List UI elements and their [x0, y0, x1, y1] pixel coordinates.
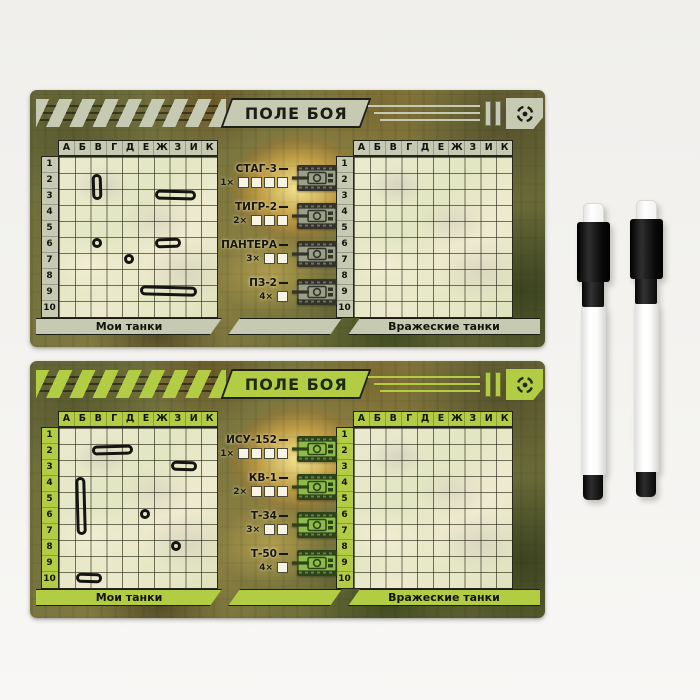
drawn-tank-mark [75, 477, 86, 535]
row-number: 6 [42, 508, 58, 524]
tank-count: 3× [246, 525, 260, 535]
marker-body [581, 307, 606, 475]
row-number: 9 [42, 285, 58, 301]
row-number: 1 [42, 428, 58, 444]
tank-name: СТАГ-3 [236, 163, 277, 175]
hit-checkbox[interactable] [251, 177, 262, 188]
column-letter: Г [402, 412, 418, 426]
column-letter: И [481, 412, 497, 426]
tank-top-view-icon [292, 511, 338, 539]
column-letter: В [386, 141, 402, 155]
hit-checkbox[interactable] [251, 215, 262, 226]
title-banner: ПОЛЕ БОЯ [221, 98, 372, 128]
tank-count: 3× [246, 254, 260, 264]
connector-line [279, 168, 288, 170]
tank-count: 2× [233, 216, 247, 226]
board-title: ПОЛЕ БОЯ [245, 375, 348, 394]
hit-checkbox[interactable] [277, 291, 288, 302]
my-tanks-label: Мои танки [36, 318, 222, 335]
column-letter: Е [434, 141, 450, 155]
drawn-tank-mark [171, 461, 197, 472]
drawn-tank-mark [92, 444, 134, 455]
game-board-top: ПОЛЕ БОЯ АБВГДЕЖЗИК 12345678910 АБВГДЕЖЗ… [30, 90, 545, 347]
hit-checkbox[interactable] [264, 215, 275, 226]
row-number: 10 [42, 572, 58, 588]
column-letter: Ж [154, 412, 170, 426]
tank-top-view-icon [292, 240, 338, 268]
column-letter: Ж [449, 412, 465, 426]
column-letter: К [202, 412, 217, 426]
board-title: ПОЛЕ БОЯ [245, 104, 348, 123]
tank-entry: ИСУ-1521× [220, 431, 340, 469]
tank-entry: СТАГ-31× [220, 160, 340, 198]
row-number: 10 [42, 301, 58, 317]
header-line [380, 119, 480, 121]
column-letters-right: АБВГДЕЖЗИК [353, 140, 513, 156]
column-letter: К [497, 412, 512, 426]
drawn-tank-mark [155, 238, 181, 249]
header-bar [485, 372, 491, 397]
hit-checkbox[interactable] [238, 448, 249, 459]
tank-top-view-icon [292, 278, 338, 306]
drawn-tank-mark [155, 189, 197, 200]
column-letters-right: АБВГДЕЖЗИК [353, 411, 513, 427]
tank-count: 1× [220, 449, 234, 459]
product-photo: ПОЛЕ БОЯ АБВГДЕЖЗИК 12345678910 АБВГДЕЖЗ… [0, 0, 700, 700]
column-letter: Е [434, 412, 450, 426]
column-letter: З [170, 141, 186, 155]
footer-divider-strip [228, 589, 342, 606]
column-letter: К [497, 141, 512, 155]
connector-line [279, 553, 288, 555]
connector-line [279, 515, 288, 517]
row-number: 1 [42, 157, 58, 173]
column-letter: Е [139, 412, 155, 426]
row-number: 7 [42, 524, 58, 540]
header-line [368, 376, 480, 378]
tank-top-view-icon [292, 549, 338, 577]
tank-entry: КВ-12× [220, 469, 340, 507]
connector-line [279, 477, 288, 479]
hazard-stripes-icon [36, 99, 226, 127]
marker-neck [582, 282, 604, 307]
column-letter: А [354, 412, 370, 426]
row-number: 4 [42, 476, 58, 492]
dry-erase-marker[interactable] [629, 200, 663, 497]
row-number: 7 [42, 253, 58, 269]
header-bar [485, 101, 491, 126]
connector-line [279, 282, 288, 284]
column-letter: Б [370, 412, 386, 426]
connector-line [279, 244, 288, 246]
game-board-bottom: ПОЛЕ БОЯ АБВГДЕЖЗИК 12345678910 АБВГДЕЖЗ… [30, 361, 545, 618]
header-line [374, 383, 480, 385]
header-bar [495, 372, 501, 397]
drawn-tank-mark [92, 174, 103, 200]
enemy-tanks-label: Вражеские танки [348, 589, 540, 606]
drawn-tank-mark [139, 285, 196, 296]
my-tanks-label-text: Мои танки [96, 591, 163, 604]
drawn-tank-mark [139, 509, 149, 519]
column-letter: Г [107, 412, 123, 426]
tank-roster: ИСУ-1521×КВ-12×Т-343×Т-504× [220, 431, 340, 583]
tank-count: 4× [259, 292, 273, 302]
column-letter: А [59, 141, 75, 155]
tank-top-view-icon [292, 473, 338, 501]
drawn-tank-mark [92, 238, 102, 248]
column-letter: Г [402, 141, 418, 155]
enemy-tanks-label-text: Вражеские танки [388, 591, 500, 604]
column-letter: Г [107, 141, 123, 155]
marker-body [634, 304, 659, 472]
column-letter: З [465, 141, 481, 155]
column-letter: Д [418, 412, 434, 426]
row-numbers-left: 12345678910 [41, 156, 59, 318]
tank-top-view-icon [292, 202, 338, 230]
tank-top-view-icon [292, 164, 338, 192]
connector-line [279, 206, 288, 208]
marker-end-plug [583, 475, 603, 500]
column-letter: И [186, 412, 202, 426]
column-letter: Е [139, 141, 155, 155]
column-letter: Ж [449, 141, 465, 155]
column-letter: А [354, 141, 370, 155]
drawn-tank-mark [76, 573, 102, 584]
row-number: 9 [42, 556, 58, 572]
hit-checkbox[interactable] [264, 253, 275, 264]
drawn-tank-mark [124, 254, 134, 264]
my-tanks-grid[interactable] [58, 427, 218, 589]
hit-checkbox[interactable] [277, 524, 288, 535]
tank-count: 1× [220, 178, 234, 188]
tank-entry: ТИГР-22× [220, 198, 340, 236]
column-letter: В [386, 412, 402, 426]
my-tanks-label: Мои танки [36, 589, 222, 606]
tank-name: ПЗ-2 [249, 277, 277, 289]
connector-line [279, 439, 288, 441]
column-letters-left: АБВГДЕЖЗИК [58, 411, 218, 427]
hazard-stripes-icon [36, 370, 226, 398]
tank-name: КВ-1 [249, 472, 277, 484]
column-letter: Ж [154, 141, 170, 155]
marker-cap [630, 219, 663, 279]
column-letter: В [91, 412, 107, 426]
hit-checkbox[interactable] [251, 486, 262, 497]
column-letter: Б [370, 141, 386, 155]
row-number: 4 [42, 205, 58, 221]
my-tanks-label-text: Мои танки [96, 320, 163, 333]
row-number: 5 [42, 492, 58, 508]
tank-name: Т-50 [251, 548, 277, 560]
row-numbers-left: 12345678910 [41, 427, 59, 589]
tank-count: 4× [259, 563, 273, 573]
tank-name: ИСУ-152 [226, 434, 277, 446]
tank-name: Т-34 [251, 510, 277, 522]
header-line [380, 390, 480, 392]
hit-checkbox[interactable] [264, 448, 275, 459]
hit-checkbox[interactable] [277, 253, 288, 264]
tank-name: ПАНТЕРА [221, 239, 277, 251]
hit-checkbox[interactable] [264, 486, 275, 497]
hit-checkbox[interactable] [251, 448, 262, 459]
marker-end-plug [636, 472, 656, 497]
hit-checkbox[interactable] [277, 177, 288, 188]
tank-name: ТИГР-2 [235, 201, 277, 213]
hit-checkbox[interactable] [238, 177, 249, 188]
drawn-marks-layer [59, 428, 217, 588]
row-number: 2 [42, 173, 58, 189]
row-number: 5 [42, 221, 58, 237]
column-letter: З [465, 412, 481, 426]
header-line [374, 112, 480, 114]
hit-checkbox[interactable] [264, 524, 275, 535]
row-number: 3 [42, 189, 58, 205]
row-number: 3 [42, 460, 58, 476]
hit-checkbox[interactable] [277, 448, 288, 459]
tank-top-view-icon [292, 435, 338, 463]
column-letter: К [202, 141, 217, 155]
tank-roster: СТАГ-31×ТИГР-22×ПАНТЕРА3×ПЗ-24× [220, 160, 340, 312]
enemy-tanks-label-text: Вражеские танки [388, 320, 500, 333]
dry-erase-marker[interactable] [576, 203, 610, 500]
enemy-tanks-grid[interactable] [353, 156, 513, 318]
column-letter: В [91, 141, 107, 155]
column-letter: Б [75, 412, 91, 426]
tank-entry: Т-504× [220, 545, 340, 583]
hit-checkbox[interactable] [277, 486, 288, 497]
marker-neck [635, 279, 657, 304]
row-number: 8 [42, 269, 58, 285]
row-number: 2 [42, 444, 58, 460]
row-number: 6 [42, 237, 58, 253]
my-tanks-grid[interactable] [58, 156, 218, 318]
tank-entry: Т-343× [220, 507, 340, 545]
column-letter: Д [123, 141, 139, 155]
enemy-tanks-grid[interactable] [353, 427, 513, 589]
tank-entry: ПЗ-24× [220, 274, 340, 312]
column-letter: Б [75, 141, 91, 155]
drawn-marks-layer [59, 157, 217, 317]
hit-checkbox[interactable] [277, 562, 288, 573]
header-line [368, 105, 480, 107]
column-letter: И [481, 141, 497, 155]
header-bar [495, 101, 501, 126]
title-banner: ПОЛЕ БОЯ [221, 369, 372, 399]
column-letter: Д [418, 141, 434, 155]
row-number: 8 [42, 540, 58, 556]
column-letter: З [170, 412, 186, 426]
column-letter: А [59, 412, 75, 426]
marker-cap [577, 222, 610, 282]
footer-divider-strip [228, 318, 342, 335]
hit-checkbox[interactable] [264, 177, 275, 188]
enemy-tanks-label: Вражеские танки [348, 318, 540, 335]
tank-entry: ПАНТЕРА3× [220, 236, 340, 274]
column-letters-left: АБВГДЕЖЗИК [58, 140, 218, 156]
column-letter: И [186, 141, 202, 155]
drawn-tank-mark [171, 541, 181, 551]
column-letter: Д [123, 412, 139, 426]
tank-count: 2× [233, 487, 247, 497]
hit-checkbox[interactable] [277, 215, 288, 226]
